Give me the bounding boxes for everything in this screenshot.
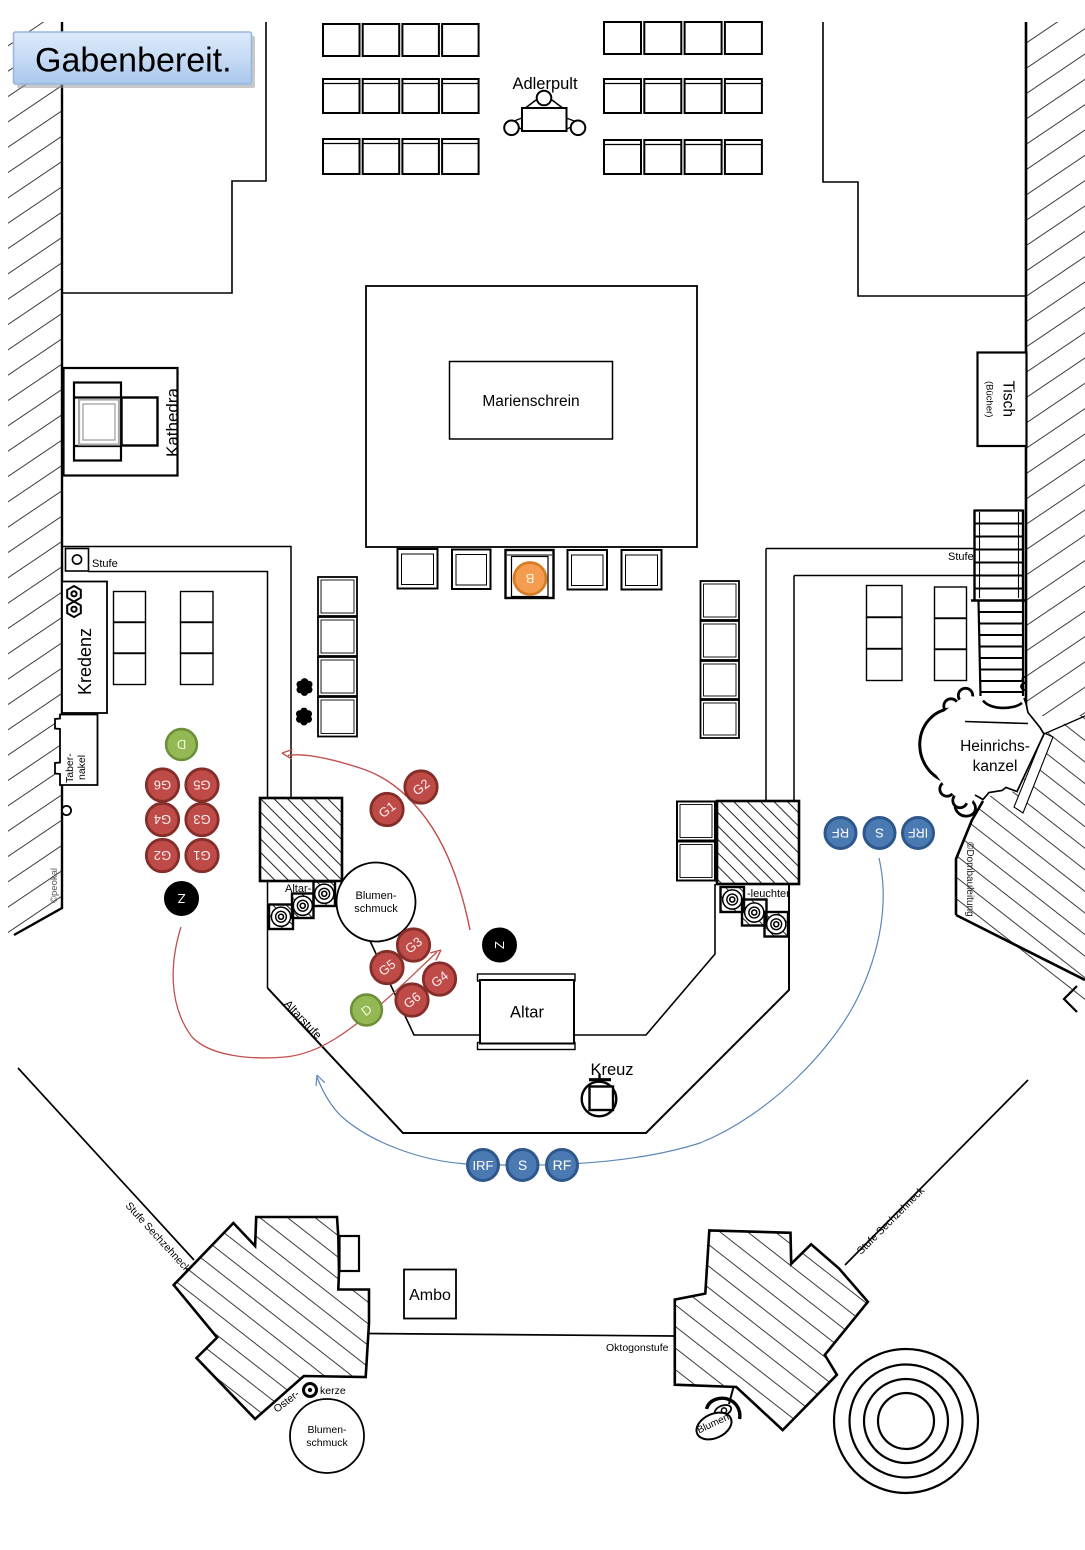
svg-text:G2: G2 (154, 848, 171, 863)
svg-text:schmuck: schmuck (354, 903, 398, 915)
svg-text:Heinrichs-: Heinrichs- (960, 738, 1030, 755)
svg-text:nakel: nakel (76, 755, 88, 780)
svg-text:Blumen-: Blumen- (307, 1424, 347, 1436)
svg-text:G1: G1 (193, 848, 210, 863)
svg-text:Stufe: Stufe (92, 558, 118, 570)
svg-text:©Dombauleitung: ©Dombauleitung (964, 842, 975, 917)
svg-text:RF: RF (553, 1157, 572, 1173)
svg-text:IRF: IRF (908, 826, 929, 840)
svg-text:G5: G5 (193, 777, 210, 792)
svg-text:RF: RF (832, 825, 849, 840)
svg-text:S: S (875, 825, 884, 840)
svg-text:Kredenz: Kredenz (75, 628, 95, 695)
svg-text:G4: G4 (154, 812, 171, 827)
svg-text:Blumen-: Blumen- (356, 890, 397, 902)
svg-text:Taber-: Taber- (64, 753, 76, 783)
svg-text:Altar-: Altar- (285, 883, 312, 895)
svg-text:Kathedra: Kathedra (163, 387, 182, 457)
svg-text:S: S (518, 1157, 527, 1173)
svg-text:Altar: Altar (510, 1004, 544, 1022)
svg-text:D: D (177, 737, 186, 752)
svg-text:©peokal: ©peokal (49, 868, 60, 903)
svg-text:Kreuz: Kreuz (590, 1061, 633, 1079)
svg-text:Stufe: Stufe (948, 551, 974, 563)
svg-text:kerze: kerze (320, 1385, 346, 1397)
svg-text:G6: G6 (154, 777, 171, 792)
svg-text:Gabenbereit.: Gabenbereit. (35, 42, 232, 80)
svg-text:Tisch: Tisch (1000, 381, 1017, 417)
svg-text:Z: Z (177, 891, 185, 906)
svg-text:G3: G3 (193, 812, 210, 827)
svg-text:-leuchter: -leuchter (747, 888, 790, 900)
svg-text:(Bücher): (Bücher) (984, 381, 995, 417)
svg-text:IRF: IRF (473, 1158, 494, 1173)
svg-text:schmuck: schmuck (306, 1437, 348, 1449)
svg-text:kanzel: kanzel (973, 758, 1018, 775)
svg-text:B: B (526, 571, 535, 586)
svg-text:Ambo: Ambo (409, 1287, 451, 1304)
svg-text:Oktogonstufe: Oktogonstufe (606, 1342, 669, 1354)
svg-text:Z: Z (492, 941, 507, 949)
svg-text:Marienschrein: Marienschrein (482, 393, 579, 410)
